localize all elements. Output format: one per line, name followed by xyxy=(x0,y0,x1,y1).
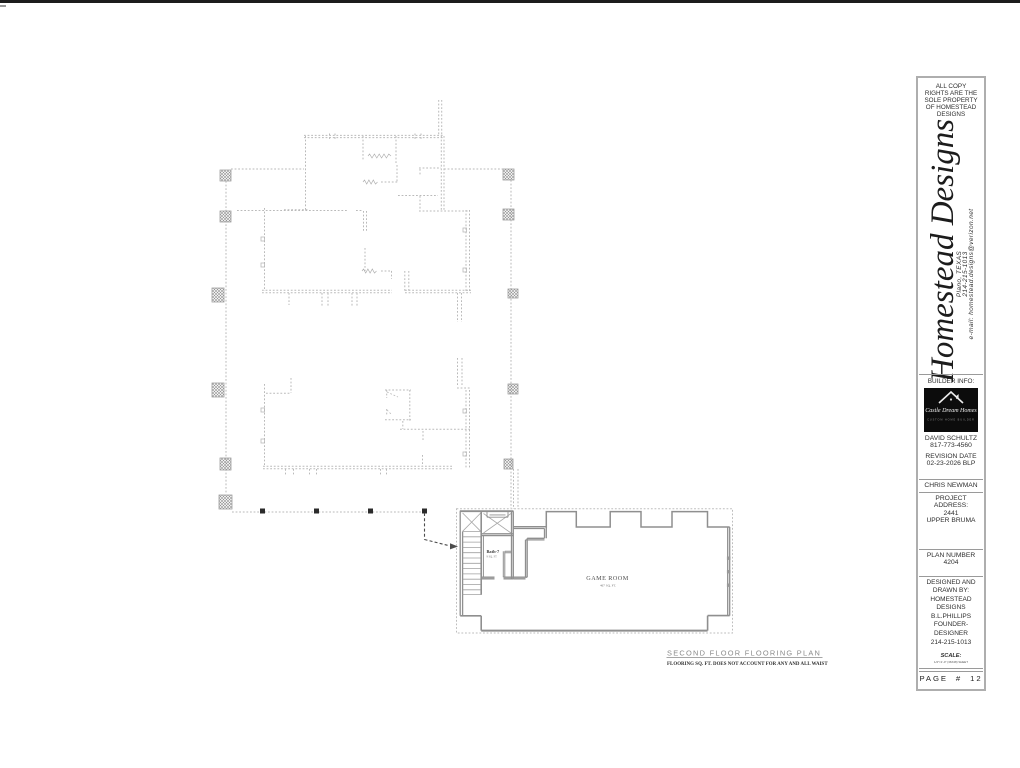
svg-text:SECOND FLOOR FLOORING PLAN: SECOND FLOOR FLOORING PLAN xyxy=(667,649,821,658)
svg-text:Castle Dream Homes: Castle Dream Homes xyxy=(925,408,977,414)
svg-text:9 SQ. FT: 9 SQ. FT xyxy=(487,555,498,558)
svg-text:Bath-7: Bath-7 xyxy=(487,549,500,554)
svg-text:GAME ROOM: GAME ROOM xyxy=(586,575,628,582)
svg-text:CUSTOM HOME BUILDER: CUSTOM HOME BUILDER xyxy=(927,419,975,422)
svg-text:467 SQ. FT.: 467 SQ. FT. xyxy=(600,584,616,588)
svg-text:FLOORING SQ. FT. DOES NOT ACCO: FLOORING SQ. FT. DOES NOT ACCOUNT FOR AN… xyxy=(667,662,828,667)
